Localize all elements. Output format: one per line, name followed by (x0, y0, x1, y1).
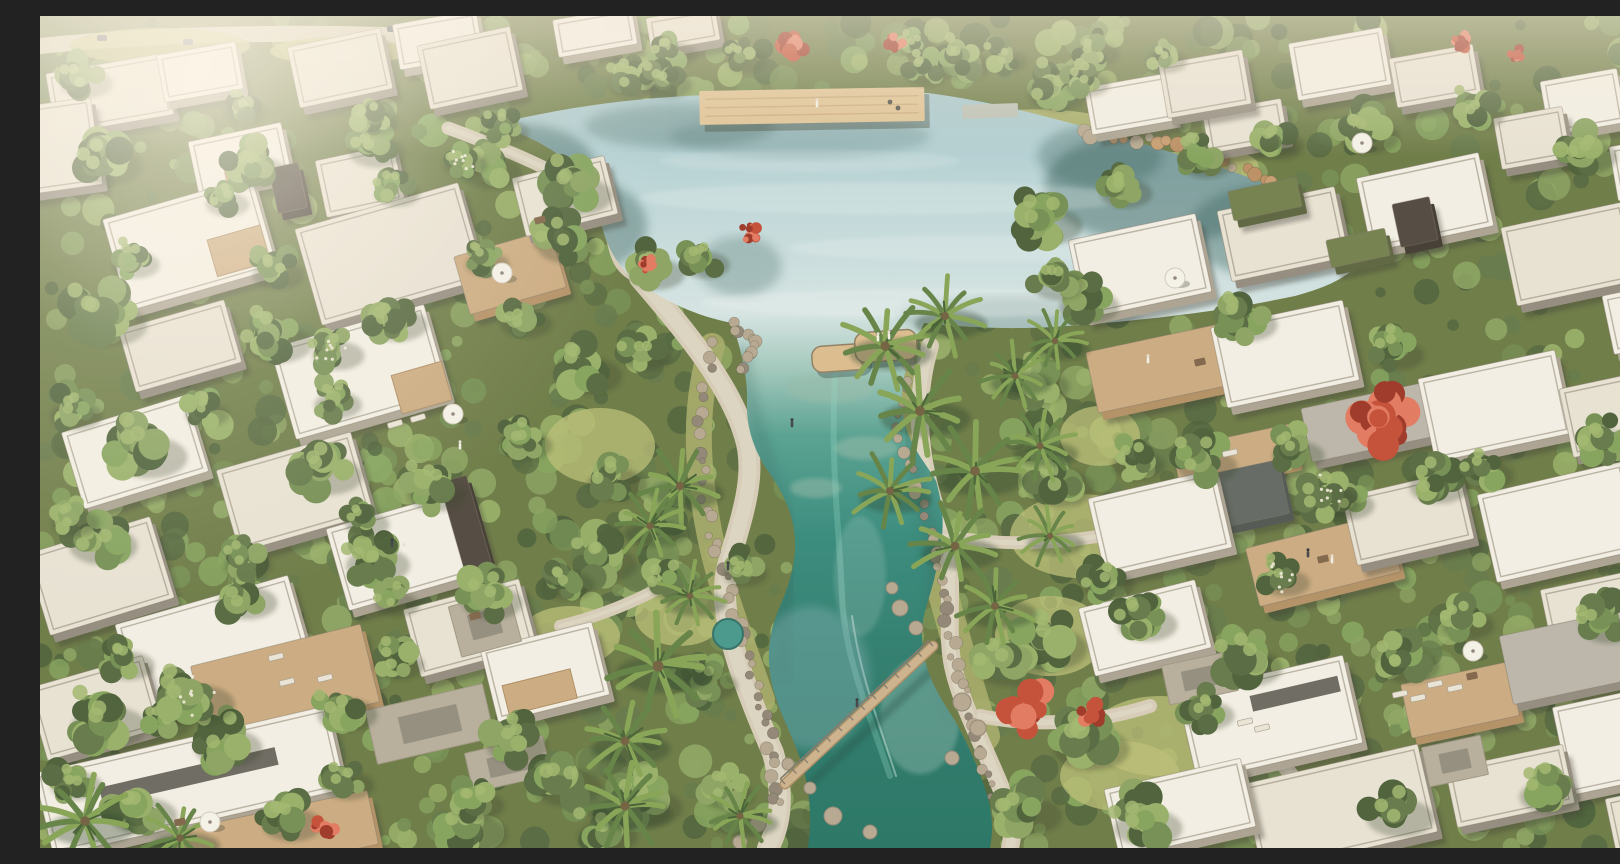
aerial-community-render (40, 16, 1620, 848)
scene-svg (40, 16, 1620, 848)
sunlight-haze (40, 16, 1620, 848)
